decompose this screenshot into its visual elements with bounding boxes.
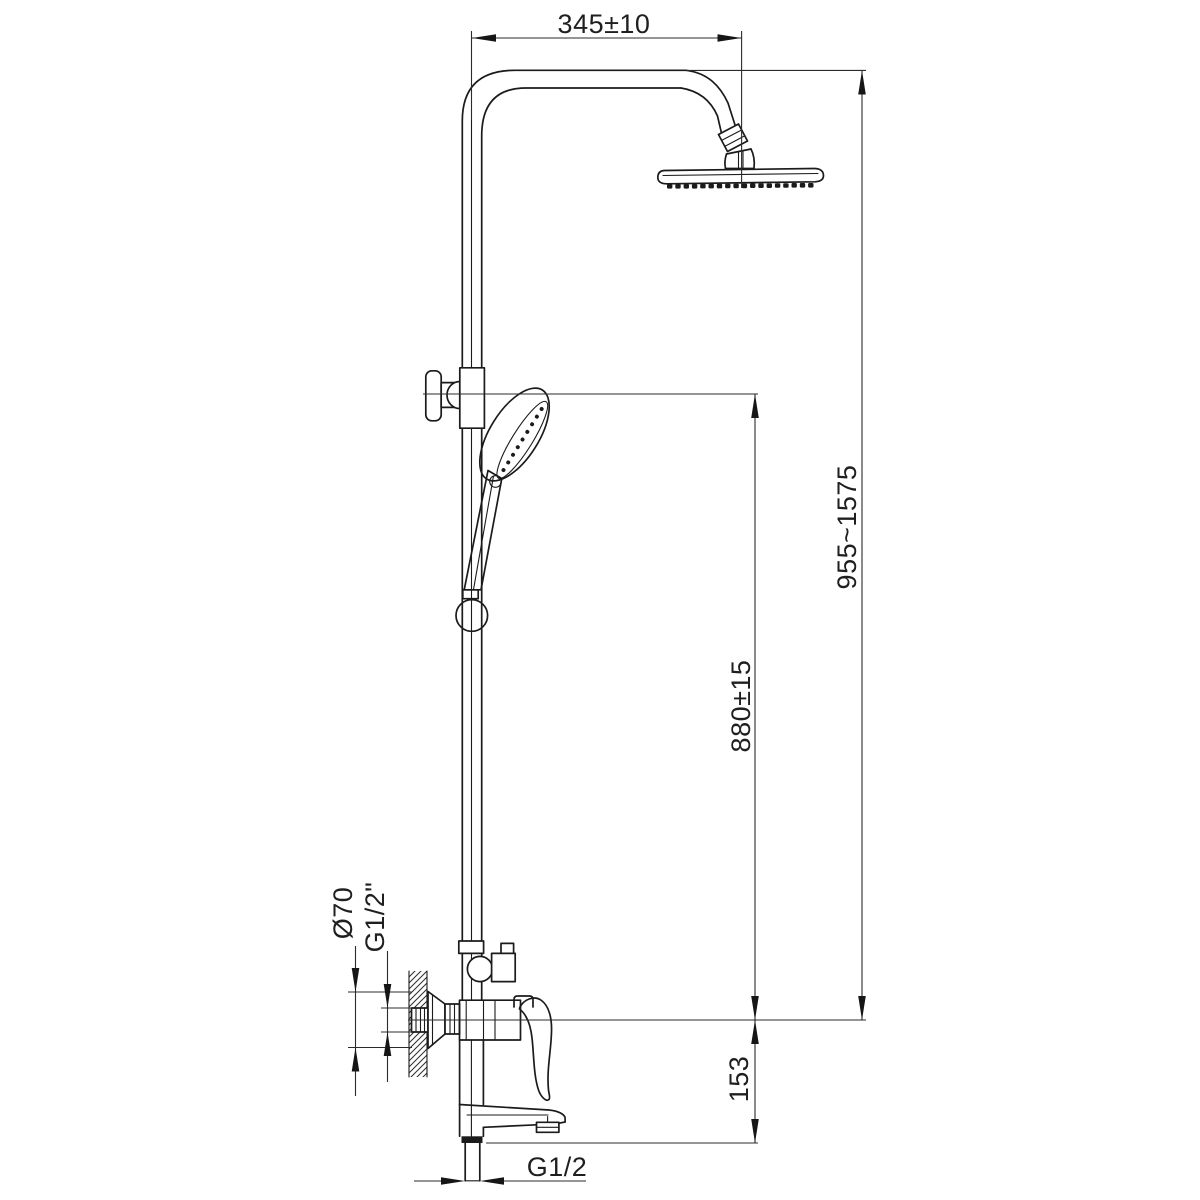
dim-label-wall-thread: G1/2" [360,882,390,953]
arm-connector-nut [719,124,748,152]
hose-elbow [467,956,492,981]
dim-wall-thread: G1/2" [360,882,412,1082]
union-nut [445,1004,460,1034]
ball-joint-housing [725,149,754,169]
bracket-body [460,368,485,428]
technical-drawing-page: 345±10 955~1575 880±15 153 Ø70 [0,0,1200,1200]
hand-shower-handle [464,471,502,590]
wall-section [409,971,428,1077]
dim-label-total-height: 955~1575 [832,465,862,590]
dim-bottom-thread: G1/2 [414,1152,587,1185]
mixer-valve-body [460,996,534,1040]
dim-bar-height: 880±15 [423,394,759,1020]
rain-shower-head [658,168,824,188]
shower-column-diagram: 345±10 955~1575 880±15 153 Ø70 [0,0,1200,1200]
dim-top-width: 345±10 [472,9,742,188]
shower-arm [681,70,736,137]
hose-outlet [459,941,515,982]
bracket-knob [426,371,441,421]
hose-nipple [492,953,516,981]
dim-label-bar-height: 880±15 [726,660,756,753]
outlet-tab [501,943,514,953]
dim-label-spout-drop: 153 [724,1056,754,1103]
base-gasket [462,1136,483,1143]
lever-handle [520,998,552,1100]
dim-label-bottom-thread: G1/2 [527,1152,588,1182]
handle-end-cap [463,590,478,599]
riser-pipe [462,70,686,1000]
slide-bar-bracket [426,368,485,428]
dim-total-height: 955~1575 [686,70,866,1020]
riser-collar [459,941,484,953]
dim-label-top-width: 345±10 [558,9,651,39]
bottom-inlet-pipe [465,1143,480,1181]
dim-label-escutcheon: Ø70 [328,887,358,940]
